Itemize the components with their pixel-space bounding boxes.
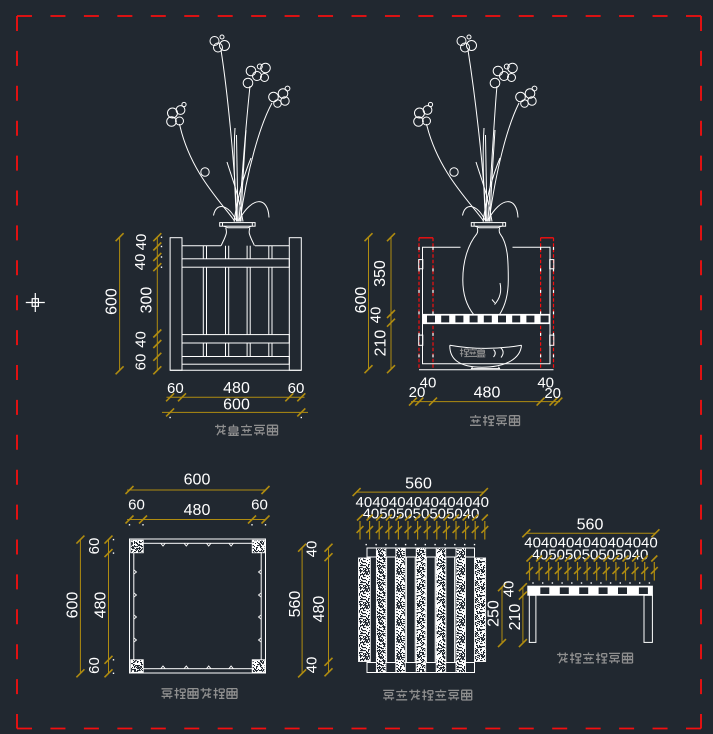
svg-text:60: 60 [251, 497, 268, 514]
svg-text:40: 40 [304, 541, 321, 558]
svg-text:20: 20 [544, 385, 561, 402]
svg-text:250: 250 [486, 600, 503, 627]
svg-text:480: 480 [223, 380, 250, 397]
svg-text:40: 40 [133, 331, 150, 348]
svg-text:40: 40 [132, 254, 149, 271]
svg-text:210: 210 [507, 604, 524, 631]
svg-text:40505050505040: 40505050505040 [363, 506, 480, 523]
svg-text:60: 60 [128, 497, 145, 514]
svg-text:600: 600 [104, 288, 121, 315]
svg-text:480: 480 [474, 385, 501, 402]
svg-text:480: 480 [311, 596, 328, 623]
svg-text:350: 350 [372, 260, 389, 287]
svg-text:300: 300 [139, 287, 156, 314]
svg-text:40: 40 [133, 234, 150, 251]
svg-text:20: 20 [409, 384, 426, 401]
svg-text:60: 60 [288, 380, 305, 397]
svg-text:210: 210 [373, 330, 390, 357]
svg-text:60: 60 [86, 657, 103, 674]
svg-text:480: 480 [93, 592, 110, 619]
svg-text:40: 40 [368, 307, 385, 324]
svg-text:40: 40 [501, 581, 518, 598]
svg-text:560: 560 [287, 591, 304, 618]
svg-text:40: 40 [304, 657, 321, 674]
svg-text:60: 60 [86, 538, 103, 555]
svg-text:40505050505040: 40505050505040 [532, 547, 649, 564]
svg-text:60: 60 [133, 354, 150, 371]
svg-text:560: 560 [577, 517, 604, 534]
svg-text:480: 480 [184, 502, 211, 519]
svg-text:60: 60 [167, 380, 184, 397]
svg-text:600: 600 [223, 396, 250, 413]
svg-text:600: 600 [65, 592, 82, 619]
svg-text:600: 600 [184, 472, 211, 489]
svg-text:560: 560 [405, 476, 432, 493]
